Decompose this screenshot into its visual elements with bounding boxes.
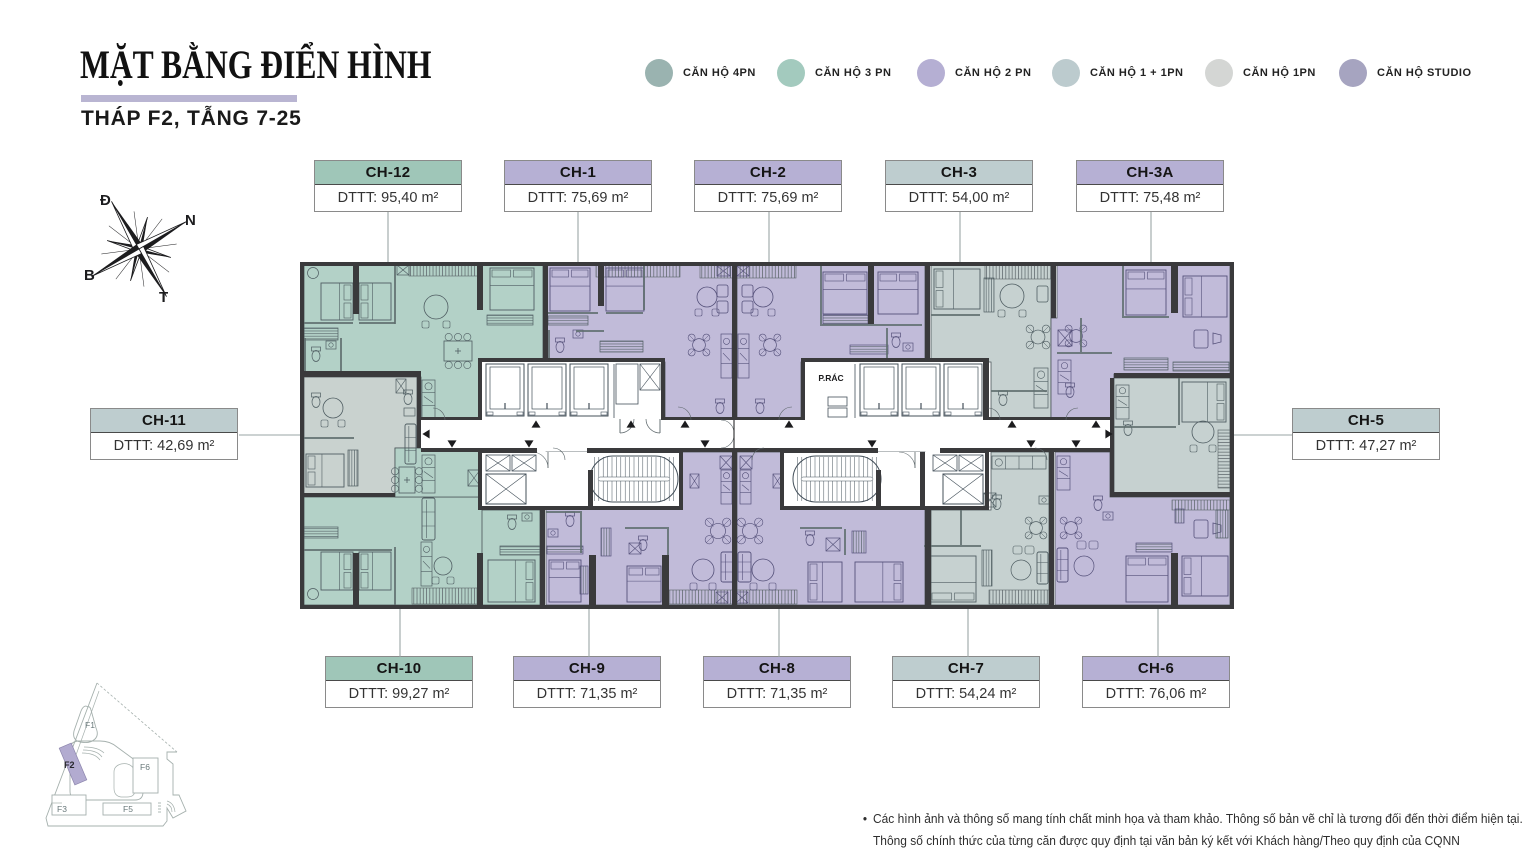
svg-text:F2: F2 bbox=[64, 760, 75, 770]
svg-text:Đ: Đ bbox=[100, 192, 111, 209]
svg-text:F5: F5 bbox=[123, 804, 133, 814]
svg-text:F1: F1 bbox=[85, 720, 95, 730]
svg-text:N: N bbox=[185, 212, 196, 229]
svg-text:B: B bbox=[84, 267, 95, 284]
svg-text:P.RÁC: P.RÁC bbox=[818, 373, 843, 383]
svg-text:T: T bbox=[159, 289, 168, 306]
svg-text:F6: F6 bbox=[140, 762, 150, 772]
svg-text:F3: F3 bbox=[57, 804, 67, 814]
